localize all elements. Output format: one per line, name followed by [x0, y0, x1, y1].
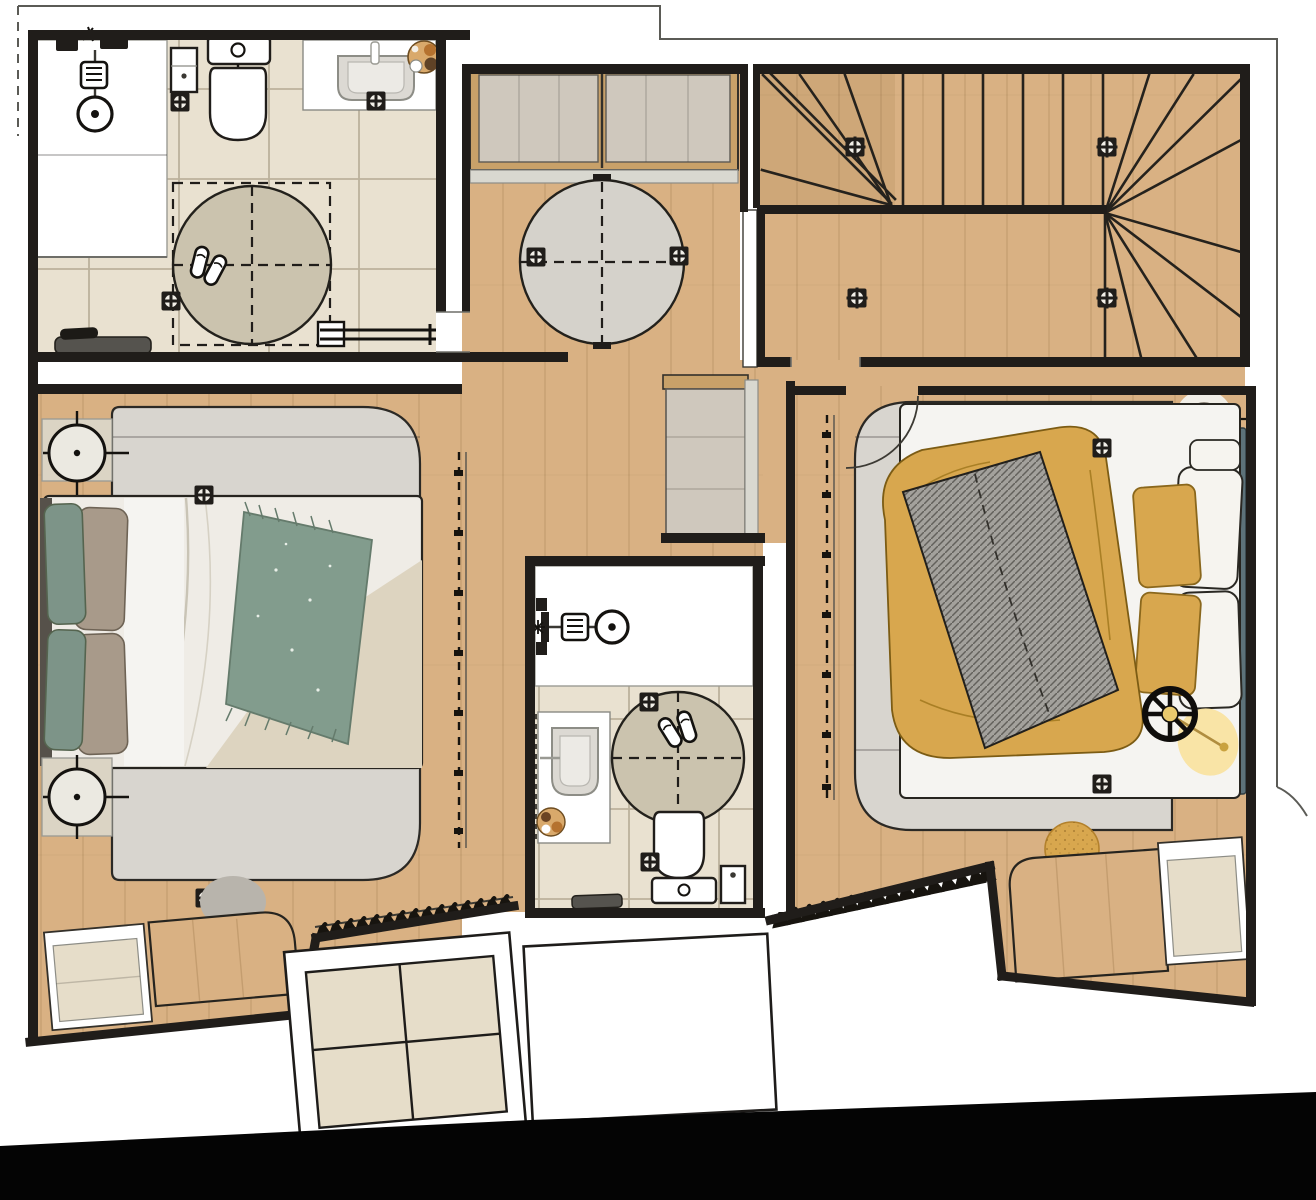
ceiling-grille-icon — [640, 693, 659, 712]
pillow — [44, 503, 86, 624]
ceiling-grille-icon — [367, 92, 386, 111]
ceiling-grille-icon — [1098, 138, 1117, 157]
pillow — [1190, 440, 1240, 470]
ceiling-grille-icon — [1098, 289, 1117, 308]
round-rug-bath1 — [173, 183, 331, 345]
ceiling-grille-icon — [195, 486, 214, 505]
corridor-door-panel — [663, 375, 758, 535]
toilet — [208, 36, 270, 140]
toilet-side-cabinet — [171, 48, 197, 92]
dresser — [44, 924, 152, 1030]
skylight-left — [284, 933, 526, 1144]
ceiling-grille-icon — [846, 138, 865, 157]
pillow — [44, 629, 86, 750]
ceiling-grille-icon — [162, 292, 181, 311]
ceiling-grille-icon — [171, 93, 190, 112]
toilet-brush-holder — [721, 866, 745, 903]
round-rug-bath2 — [612, 692, 744, 824]
pillow — [1133, 484, 1202, 588]
ceiling-grille-icon — [641, 853, 660, 872]
ceiling-grille-icon — [670, 247, 689, 266]
built-in-wardrobe — [470, 66, 738, 183]
ceiling-grille-icon — [1093, 439, 1112, 458]
bathroom-middle — [531, 566, 753, 909]
green-throw — [226, 502, 372, 744]
double-bed — [40, 496, 422, 768]
skylight-middle — [524, 934, 777, 1123]
towel-basket-icon — [537, 808, 565, 836]
desk — [149, 910, 300, 1006]
floor-plan-canvas — [0, 0, 1316, 1200]
floor-plan-drawing — [0, 0, 1316, 1200]
bathroom-top-left — [37, 27, 440, 354]
pillow — [1135, 592, 1202, 696]
ceiling-grille-icon — [1093, 775, 1112, 794]
ceiling-grille-icon — [848, 289, 867, 308]
towel-basket-icon — [408, 41, 440, 73]
desk — [1008, 849, 1168, 981]
dresser — [1158, 837, 1250, 965]
ceiling-grille-icon — [527, 248, 546, 267]
doormat — [572, 894, 622, 909]
